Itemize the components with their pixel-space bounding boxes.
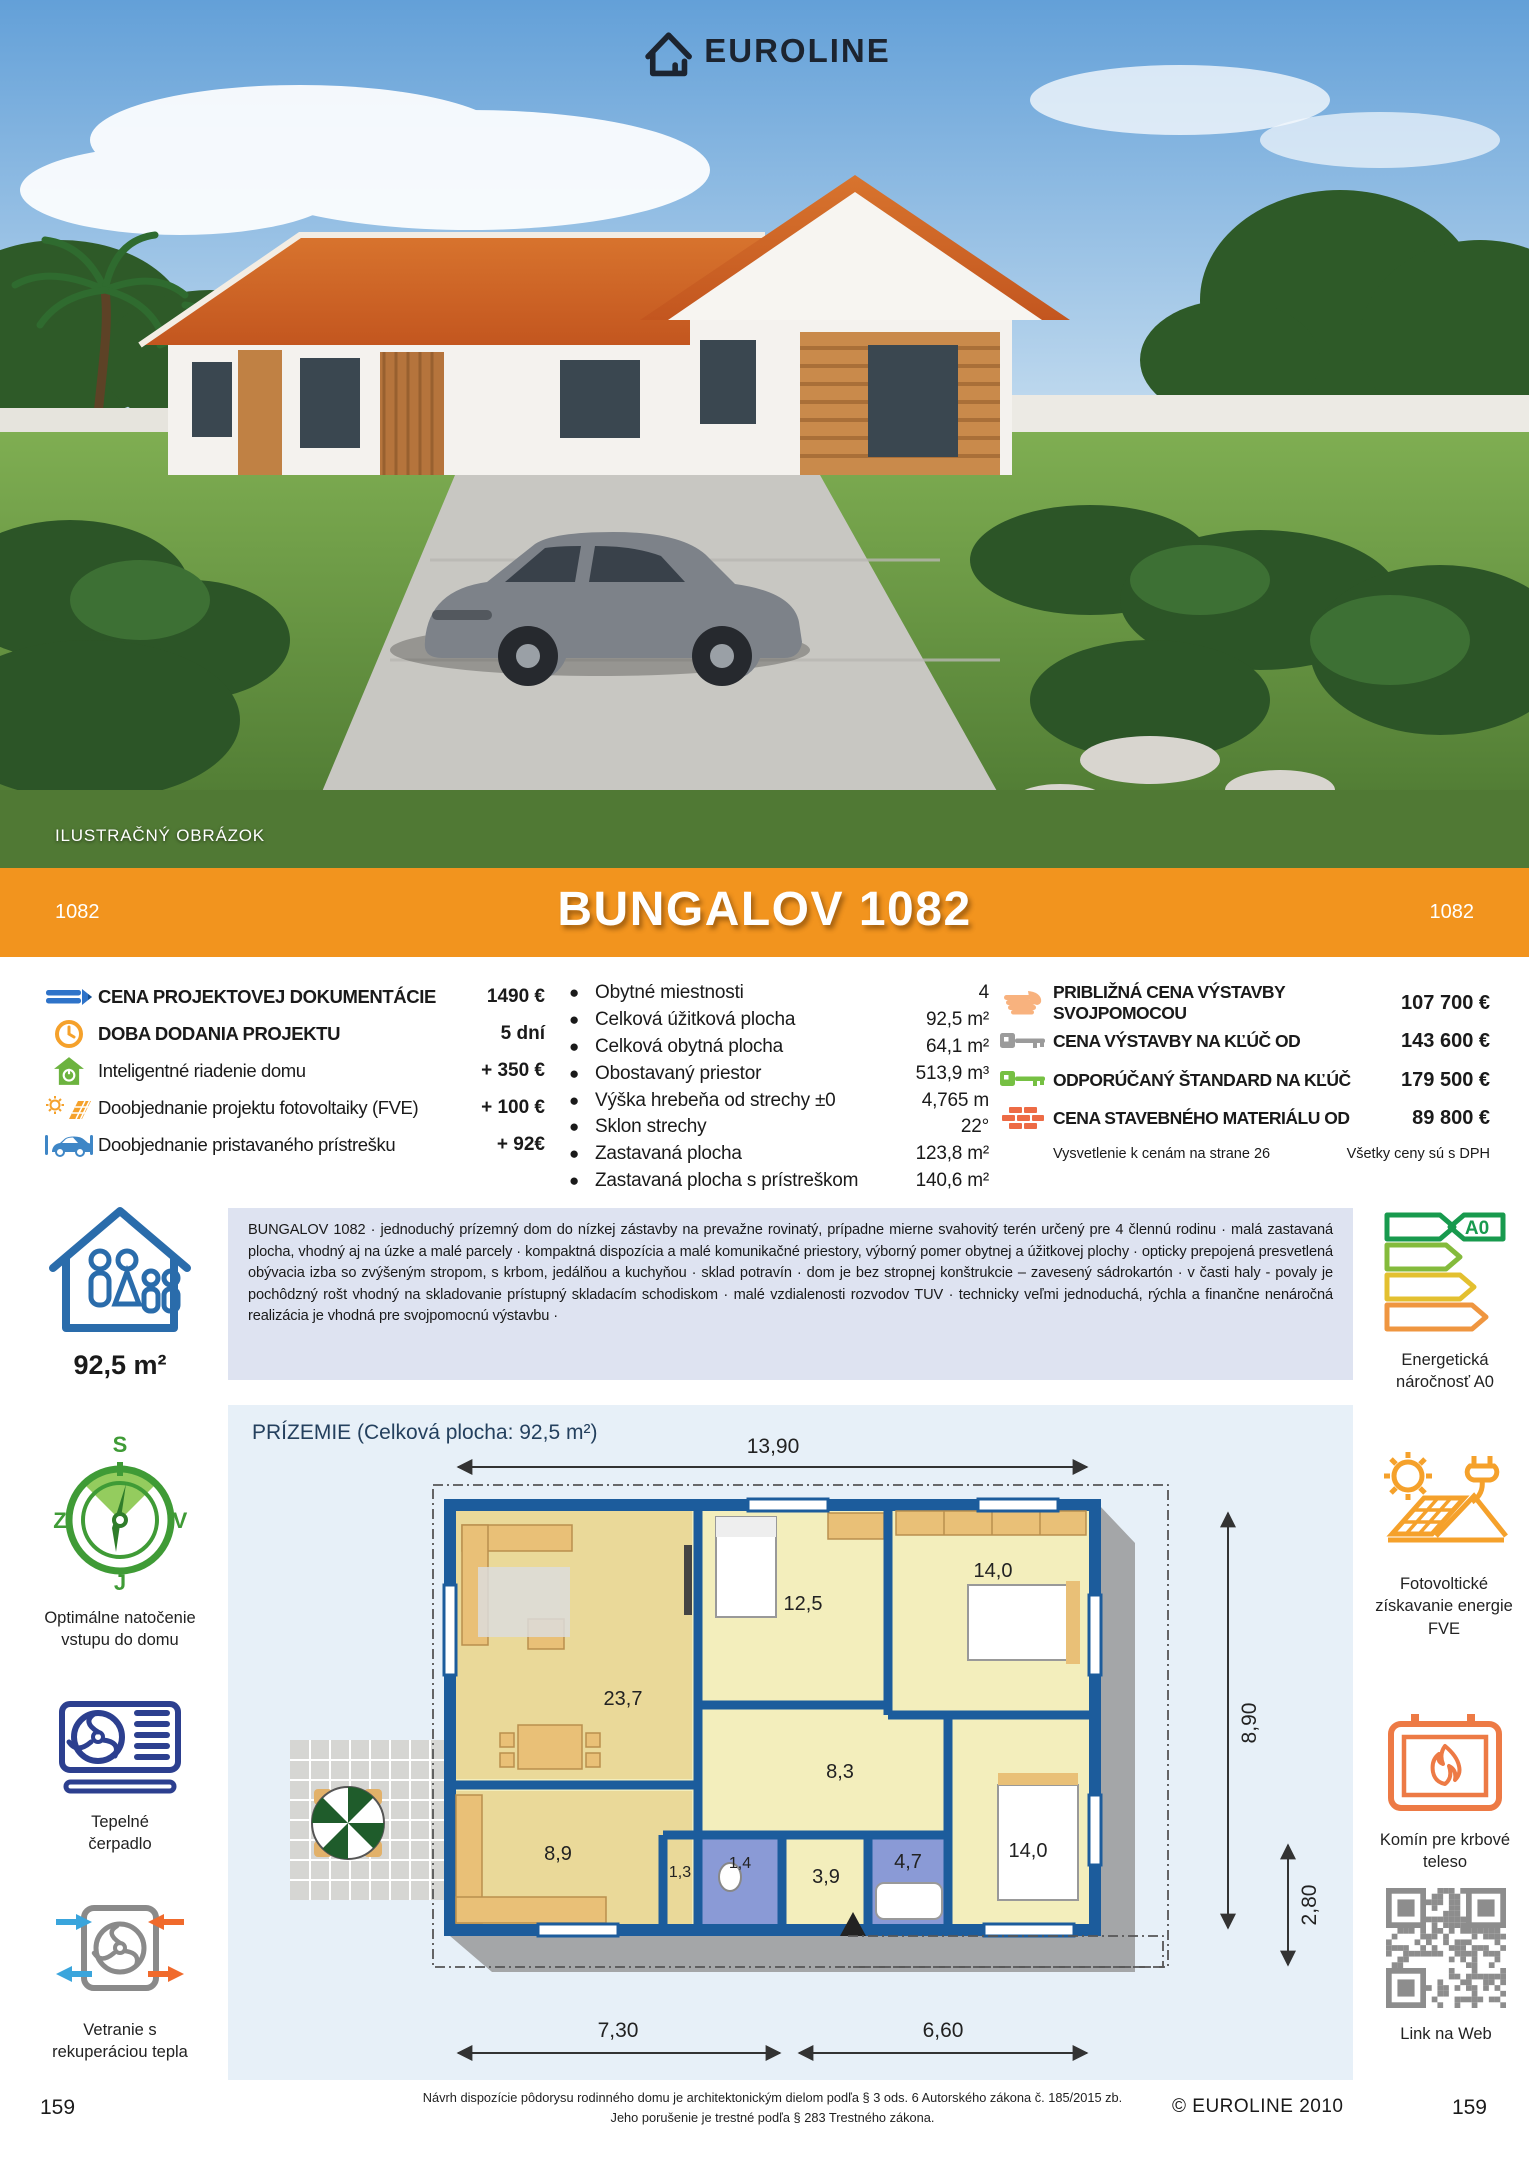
price-label: ODPORÚČANÝ ŠTANDARD NA KĽÚČ xyxy=(1053,1070,1401,1091)
energy-label-icon: A0 xyxy=(1384,1212,1506,1334)
pencil-icon xyxy=(40,988,98,1006)
fireplace-caption: Komín pre krbové teleso xyxy=(1375,1829,1515,1874)
param-value: 92,5 m² xyxy=(926,1009,989,1031)
price-row: CENA VÝSTAVBY NA KĽÚČ OD 143 600 € xyxy=(993,1023,1490,1062)
price-note-reference: Vysvetlenie k cenám na strane 26 xyxy=(1053,1146,1270,1162)
param-row: ●Zastavaná plocha s prístreškom140,6 m² xyxy=(553,1168,989,1195)
qr-caption: Link na Web xyxy=(1383,2023,1509,2045)
solar-energy-icon xyxy=(1378,1448,1510,1558)
price-value: 143 600 € xyxy=(1401,1030,1490,1053)
param-row: ●Celková úžitková plocha92,5 m² xyxy=(553,1007,989,1034)
spec-row: CENA PROJEKTOVEJ DOKUMENTÁCIE 1490 € xyxy=(40,978,545,1015)
brand-name: EUROLINE xyxy=(704,32,891,70)
house-illustration xyxy=(0,0,1529,868)
price-label: CENA STAVEBNÉHO MATERIÁLU OD xyxy=(1053,1108,1412,1129)
bricks-icon xyxy=(993,1106,1053,1132)
qr-block: Link na Web xyxy=(1383,1888,1509,2045)
price-label: PRIBLIŽNÁ CENA VÝSTAVBY SVOJPOMOCOU xyxy=(1053,982,1401,1024)
spec-label: Doobjednanie projektu fotovoltaiky (FVE) xyxy=(98,1097,481,1119)
family-house-icon xyxy=(45,1202,195,1337)
brand-logo: EUROLINE xyxy=(638,22,891,80)
param-row: ●Celková obytná plocha64,1 m² xyxy=(553,1034,989,1061)
param-value: 4,765 m xyxy=(922,1090,989,1112)
param-row: ●Obostavaný priestor513,9 m³ xyxy=(553,1060,989,1087)
bullet-icon: ● xyxy=(553,1010,595,1030)
param-label: Zastavaná plocha s prístreškom xyxy=(595,1170,916,1192)
page-title: BUNGALOV 1082 xyxy=(0,882,1529,937)
energy-caption: Energetická náročnosť A0 xyxy=(1372,1349,1518,1394)
total-area-value: 92,5 m² xyxy=(30,1350,210,1381)
legal-line-1: Návrh dispozície pôdorysu rodinného domu… xyxy=(400,2088,1145,2108)
compass-caption: Optimálne natočenie vstupu do domu xyxy=(38,1607,202,1652)
dim-bottom-left: 7,30 xyxy=(598,2019,639,2042)
ventilation-caption: Vetranie s rekuperáciou tepla xyxy=(38,2019,202,2064)
floorplan-panel: PRÍZEMIE (Celková plocha: 92,5 m²) xyxy=(228,1405,1353,2080)
model-banner: 1082 BUNGALOV 1082 1082 xyxy=(0,868,1529,957)
heatpump-caption: Tepelné čerpadlo xyxy=(38,1811,202,1856)
spec-row: Inteligentné riadenie domu + 350 € xyxy=(40,1052,545,1089)
spec-label: CENA PROJEKTOVEJ DOKUMENTÁCIE xyxy=(98,986,487,1008)
energy-block: A0 Energetická náročnosť A0 xyxy=(1372,1212,1518,1394)
solar-panel-icon xyxy=(40,1094,98,1122)
param-row: ●Sklon strechy22° xyxy=(553,1114,989,1141)
param-label: Celková obytná plocha xyxy=(595,1036,926,1058)
param-value: 140,6 m² xyxy=(916,1170,989,1192)
bullet-icon: ● xyxy=(553,1171,595,1191)
param-value: 4 xyxy=(979,982,989,1004)
euroline-house-icon xyxy=(638,22,694,80)
energy-badge: A0 xyxy=(1465,1218,1489,1239)
room-area-bedroom3: 14,0 xyxy=(1009,1840,1048,1862)
param-row: ●Zastavaná plocha123,8 m² xyxy=(553,1141,989,1168)
bullet-icon: ● xyxy=(553,1144,595,1164)
page-number-left: 159 xyxy=(40,2096,75,2120)
catalog-page: EUROLINE ILUSTRAČNÝ OBRÁZOK 1082 BUNGALO… xyxy=(0,0,1529,2160)
bullet-icon: ● xyxy=(553,1037,595,1057)
ventilation-block: Vetranie s rekuperáciou tepla xyxy=(38,1892,202,2064)
house-description: BUNGALOV 1082 · jednoduchý prízemný dom … xyxy=(228,1208,1353,1380)
smart-home-icon xyxy=(40,1056,98,1086)
param-row: ●Výška hrebeňa od strechy ±04,765 m xyxy=(553,1087,989,1114)
param-label: Sklon strechy xyxy=(595,1116,961,1138)
spec-value: 5 dní xyxy=(501,1023,545,1045)
room-area-kitchen: 8,9 xyxy=(544,1843,572,1865)
price-value: 107 700 € xyxy=(1401,992,1490,1015)
param-label: Celková úžitková plocha xyxy=(595,1009,926,1031)
compass-icon: S Z V J xyxy=(50,1432,190,1592)
price-label: CENA VÝSTAVBY NA KĽÚČ OD xyxy=(1053,1031,1401,1052)
fireplace-block: Komín pre krbové teleso xyxy=(1375,1712,1515,1874)
price-value: 89 800 € xyxy=(1412,1107,1490,1130)
price-note-vat: Všetky ceny sú s DPH xyxy=(1347,1146,1490,1162)
bullet-icon: ● xyxy=(553,1064,595,1084)
floor-plan: 23,7 8,9 1,3 12,5 8,3 1,4 3,9 4,7 14,0 1… xyxy=(228,1405,1353,2080)
param-row: ●Obytné miestnosti4 xyxy=(553,980,989,1007)
compass-east-label: V xyxy=(173,1508,188,1533)
spec-label: DOBA DODANIA PROJEKTU xyxy=(98,1023,501,1045)
room-area-wc: 1,4 xyxy=(729,1855,751,1872)
house-photo: EUROLINE ILUSTRAČNÝ OBRÁZOK xyxy=(0,0,1529,868)
legal-text: Návrh dispozície pôdorysu rodinného domu… xyxy=(400,2088,1145,2128)
param-value: 513,9 m³ xyxy=(916,1063,989,1085)
spec-row: DOBA DODANIA PROJEKTU 5 dní xyxy=(40,1015,545,1052)
compass-north-label: S xyxy=(113,1432,128,1457)
fireplace-icon xyxy=(1385,1712,1505,1814)
room-area-corridor: 3,9 xyxy=(812,1866,840,1888)
key-standard-icon xyxy=(993,1069,1053,1091)
spec-label: Inteligentné riadenie domu xyxy=(98,1060,481,1082)
dim-bottom-right: 6,60 xyxy=(923,2019,964,2042)
spec-value: + 100 € xyxy=(481,1097,545,1119)
price-row: ODPORÚČANÝ ŠTANDARD NA KĽÚČ 179 500 € xyxy=(993,1061,1490,1100)
room-area-bathroom: 4,7 xyxy=(894,1851,922,1873)
price-row: CENA STAVEBNÉHO MATERIÁLU OD 89 800 € xyxy=(993,1100,1490,1139)
photo-caption: ILUSTRAČNÝ OBRÁZOK xyxy=(55,826,265,846)
heatpump-block: Tepelné čerpadlo xyxy=(38,1700,202,1856)
param-label: Zastavaná plocha xyxy=(595,1143,916,1165)
hand-icon xyxy=(993,990,1053,1016)
param-label: Výška hrebeňa od strechy ±0 xyxy=(595,1090,922,1112)
dim-porch: 2,80 xyxy=(1298,1885,1321,1926)
price-value: 179 500 € xyxy=(1401,1069,1490,1092)
room-area-hall: 8,3 xyxy=(826,1761,854,1783)
parameters-list: ●Obytné miestnosti4 ●Celková úžitková pl… xyxy=(553,980,989,1194)
spec-row: Doobjednanie pristavaného prístrešku + 9… xyxy=(40,1126,545,1163)
parasol-table-icon xyxy=(312,1787,384,1859)
param-value: 64,1 m² xyxy=(926,1036,989,1058)
room-area-pantry: 1,3 xyxy=(669,1864,691,1881)
heat-pump-icon xyxy=(58,1700,182,1796)
room-area-bedroom1: 12,5 xyxy=(784,1593,823,1615)
copyright: © EUROLINE 2010 xyxy=(1172,2096,1343,2118)
spec-value: 1490 € xyxy=(487,986,545,1008)
spec-row: Doobjednanie projektu fotovoltaiky (FVE)… xyxy=(40,1089,545,1126)
clock-icon xyxy=(40,1019,98,1049)
param-label: Obostavaný priestor xyxy=(595,1063,916,1085)
legal-line-2: Jeho porušenie je trestné podľa § 283 Tr… xyxy=(400,2108,1145,2128)
dim-depth: 8,90 xyxy=(1238,1703,1261,1744)
project-spec-list: CENA PROJEKTOVEJ DOKUMENTÁCIE 1490 € DOB… xyxy=(40,978,545,1163)
bullet-icon: ● xyxy=(553,1117,595,1137)
model-code-right: 1082 xyxy=(1430,901,1475,924)
bullet-icon: ● xyxy=(553,983,595,1003)
floorplan-heading: PRÍZEMIE (Celková plocha: 92,5 m²) xyxy=(252,1421,597,1445)
fve-caption: Fotovoltické získavanie energie FVE xyxy=(1368,1573,1520,1640)
price-row: PRIBLIŽNÁ CENA VÝSTAVBY SVOJPOMOCOU 107 … xyxy=(993,984,1490,1023)
fve-block: Fotovoltické získavanie energie FVE xyxy=(1368,1448,1520,1640)
param-label: Obytné miestnosti xyxy=(595,982,979,1004)
spec-value: + 350 € xyxy=(481,1060,545,1082)
key-turnkey-icon xyxy=(993,1031,1053,1053)
bullet-icon: ● xyxy=(553,1091,595,1111)
compass-block: S Z V J Optimálne natočenie vstupu do do… xyxy=(38,1432,202,1652)
build-price-list: PRIBLIŽNÁ CENA VÝSTAVBY SVOJPOMOCOU 107 … xyxy=(993,984,1490,1162)
ventilation-icon xyxy=(54,1892,186,2004)
page-number-right: 159 xyxy=(1452,2096,1487,2120)
price-notes: Vysvetlenie k cenám na strane 26 Všetky … xyxy=(993,1146,1490,1162)
qr-code-icon xyxy=(1386,1888,1506,2008)
compass-west-label: Z xyxy=(53,1508,66,1533)
compass-south-label: J xyxy=(114,1570,126,1592)
room-area-bedroom2: 14,0 xyxy=(974,1560,1013,1582)
family-house-block: 92,5 m² xyxy=(30,1202,210,1381)
param-value: 22° xyxy=(961,1116,989,1138)
carport-icon xyxy=(40,1132,98,1158)
dim-width: 13,90 xyxy=(747,1435,800,1458)
spec-label: Doobjednanie pristavaného prístrešku xyxy=(98,1134,497,1156)
room-area-living: 23,7 xyxy=(604,1688,643,1710)
spec-value: + 92€ xyxy=(497,1134,545,1156)
param-value: 123,8 m² xyxy=(916,1143,989,1165)
